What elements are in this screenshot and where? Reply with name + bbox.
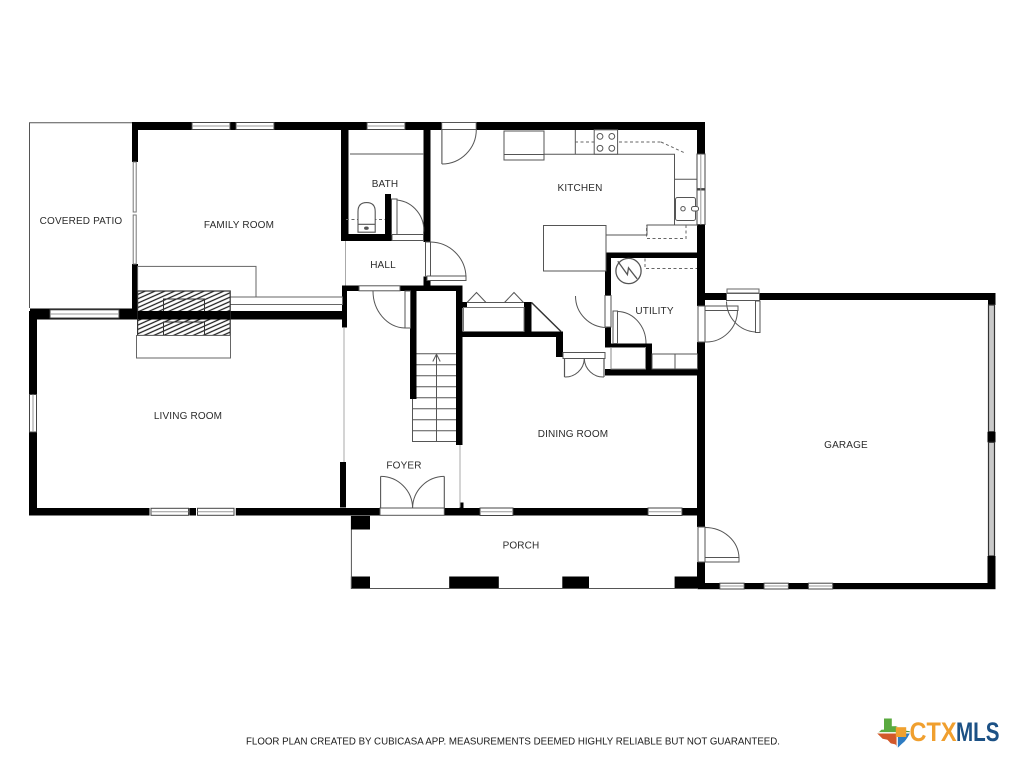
svg-text:DINING ROOM: DINING ROOM — [538, 429, 609, 440]
svg-text:PORCH: PORCH — [503, 541, 540, 552]
svg-text:LIVING ROOM: LIVING ROOM — [154, 411, 222, 422]
svg-text:HALL: HALL — [370, 260, 396, 271]
svg-text:COVERED PATIO: COVERED PATIO — [40, 216, 123, 227]
svg-text:UTILITY: UTILITY — [635, 306, 673, 317]
svg-text:GARAGE: GARAGE — [824, 440, 868, 451]
svg-text:CTX: CTX — [910, 717, 957, 747]
svg-text:KITCHEN: KITCHEN — [558, 183, 603, 194]
svg-text:FOYER: FOYER — [386, 461, 421, 472]
svg-text:MLS: MLS — [956, 717, 1000, 747]
svg-text:BATH: BATH — [372, 179, 399, 190]
svg-text:FLOOR PLAN CREATED BY CUBICASA: FLOOR PLAN CREATED BY CUBICASA APP. MEAS… — [246, 736, 780, 748]
svg-text:FAMILY ROOM: FAMILY ROOM — [204, 220, 274, 231]
